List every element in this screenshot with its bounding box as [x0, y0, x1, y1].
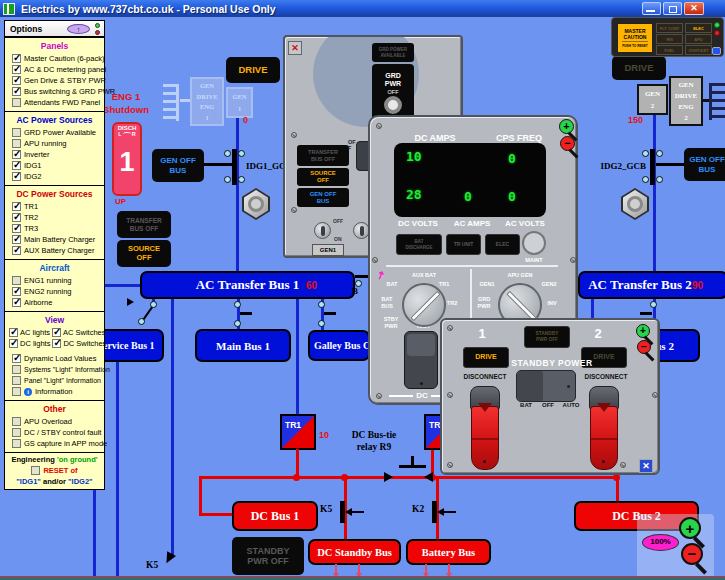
section-ac-power: AC Power Sources GRD Power Available APU… — [5, 111, 104, 185]
btb-wire — [355, 275, 368, 278]
engineering-idg-line: "IDG1" and/or "IDG2" — [6, 477, 103, 486]
cps-freq-value: 0 — [508, 151, 516, 166]
checkbox[interactable] — [12, 213, 21, 222]
option-grd-power[interactable]: GRD Power Available — [5, 127, 104, 138]
option-reset-idg[interactable]: RESET of — [6, 466, 103, 475]
dc-bus-tie-wire — [199, 476, 619, 479]
contact-dot — [224, 150, 231, 157]
dc-sel-aux-bat: AUX BAT — [400, 272, 448, 279]
checkbox[interactable] — [12, 150, 21, 159]
ac-sel-apu-gen: APU GEN — [496, 272, 544, 279]
contact-dot — [318, 301, 325, 308]
wire — [104, 284, 141, 287]
wire-idg2 — [653, 114, 656, 272]
gen-drive-eng1-box: GENDRIVEENG1 — [190, 77, 224, 126]
section-heading: Aircraft — [5, 261, 104, 275]
zoom-out-button[interactable]: − — [681, 543, 703, 565]
off-label: OFF — [333, 218, 343, 224]
idg1-gcb-breaker — [232, 149, 237, 185]
minimize-button[interactable] — [642, 2, 661, 15]
dc-volts-value: 28 — [406, 187, 422, 202]
tr1-load: 10 — [319, 430, 329, 440]
guard-cap — [517, 371, 543, 401]
option-apu-overload[interactable]: APU Overload — [5, 416, 104, 427]
tr1-unit: TR1 — [280, 414, 316, 450]
app-window: GENDRIVEENG1 GEN1 ENG 1Shutdown DRIVE DI… — [0, 0, 725, 580]
contact-dot — [234, 320, 241, 327]
grd-pwr-button[interactable] — [384, 96, 402, 114]
k2-label: K2 — [412, 504, 424, 514]
checkbox[interactable] — [12, 98, 21, 107]
section-panels: Panels Master Caution (6-pack) AC & DC m… — [5, 37, 104, 111]
option-systems-light-info[interactable]: Systems "Light" Information — [5, 364, 104, 375]
standby-pwr-off-annunciator: STANDBY PWR OFF — [524, 326, 570, 348]
grd-power-available-light: GRD POWERAVAILABLE — [372, 43, 414, 62]
wire — [116, 345, 119, 580]
dc-amps-label: DC AMPS — [400, 133, 470, 143]
checkbox[interactable] — [12, 287, 21, 296]
zoom-in-icon[interactable]: + — [636, 324, 650, 338]
idg2-gcb-breaker — [650, 149, 655, 185]
disconnect2-switch[interactable] — [589, 386, 619, 471]
checkbox[interactable] — [12, 224, 21, 233]
dc-bus1: DC Bus 1 — [232, 501, 318, 531]
contact-dot — [656, 176, 663, 183]
dc-meters-selector-knob[interactable] — [402, 283, 446, 327]
dc-volts-label: DC VOLTS — [390, 219, 446, 228]
option-bus-switching[interactable]: Bus switching & GRD PWR — [5, 86, 104, 97]
ac-sel-inv: INV — [542, 300, 562, 307]
ac-transfer-bus1: AC Transfer Bus 1 60 — [140, 271, 355, 299]
bat-discharge-button[interactable]: BATDISCHARGE — [396, 234, 442, 255]
k5-label: K5 — [320, 504, 332, 514]
zoom-percent-badge: 100% — [642, 534, 679, 551]
switch-tick — [640, 312, 652, 315]
checkbox[interactable] — [12, 387, 21, 396]
contact-dot — [238, 176, 245, 183]
ac-sel-grd-pwr: GRD PWR — [472, 296, 496, 309]
disconnect1-switch[interactable] — [470, 386, 500, 471]
gen-off-bus-light-idg2: GEN OFF BUS — [684, 148, 725, 181]
option-gs-capture[interactable]: GS capture in APP mode — [5, 438, 104, 449]
ac-sel-gen1: GEN1 — [474, 281, 500, 288]
junction-dot — [293, 474, 300, 481]
checkbox[interactable] — [12, 439, 21, 448]
gen-drive-eng2-box: GENDRIVEENG2 — [669, 76, 703, 126]
dc-sel-bat-bus: BAT BUS — [375, 296, 399, 309]
dc-wire — [199, 476, 202, 516]
checkbox[interactable] — [9, 328, 18, 337]
ac-volts-value: 0 — [508, 189, 516, 204]
option-attendants-panel[interactable]: Attendants FWD Panel — [5, 97, 104, 108]
relay-arrow-icon — [424, 472, 433, 482]
battery-switch-cap — [407, 334, 435, 356]
gen1-number: 1 — [472, 326, 492, 341]
k5-relay — [350, 511, 364, 513]
push-to-reset-label: PUSH TO RESET — [622, 41, 648, 49]
battery-switch[interactable] — [404, 331, 438, 389]
checkbox[interactable] — [12, 365, 21, 374]
checkbox[interactable] — [12, 276, 21, 285]
option-idg2[interactable]: IDG2 — [5, 171, 104, 182]
ac-bus1-load: 60 — [306, 280, 317, 291]
ac-sel-gen2: GEN2 — [536, 281, 562, 288]
panel-gen-off-bus-light: GEN OFF BUS — [297, 188, 349, 207]
checkbox[interactable] — [12, 161, 21, 170]
breaker-tie — [656, 163, 684, 166]
zoom-out-icon[interactable]: − — [637, 340, 651, 354]
title-bar[interactable]: Electrics by www.737cbt.co.uk - Personal… — [0, 0, 725, 17]
maint-label: MAINT — [518, 257, 550, 263]
panel-source-off-light: SOURCE OFF — [297, 168, 349, 186]
divider — [386, 265, 558, 267]
checkbox[interactable] — [52, 339, 61, 348]
dc-sel-bat: BAT — [382, 281, 402, 288]
ac-bus2-load: 90 — [692, 280, 703, 291]
generator2-nut-icon — [621, 188, 649, 220]
checkbox[interactable] — [12, 417, 21, 426]
section-heading: AC Power Sources — [5, 113, 104, 127]
dc-standby-bus: DC Standby Bus — [308, 539, 401, 565]
gen2-number: 2 — [588, 326, 608, 341]
section-dc-power: DC Power Sources TR1 TR2 TR3 Main Batter… — [5, 185, 104, 259]
battery-switch-pin — [420, 382, 423, 385]
disconnect1-label: DISCONNECT — [459, 373, 511, 380]
section-view: View AC lights AC Switches DC lights DC … — [5, 311, 104, 400]
restore-button[interactable] — [663, 2, 682, 15]
wire-tr1-feed — [296, 298, 299, 416]
arc-icon — [123, 132, 131, 136]
engine1-pylon-icon — [163, 84, 179, 121]
tr-unit-button[interactable]: TR UNIT — [446, 234, 481, 255]
engineering-title: Engineering 'on ground' — [6, 455, 103, 464]
wire-idg1 — [236, 118, 239, 272]
fire-handle-eng1[interactable]: DISCH LR 1 — [112, 122, 142, 196]
off-vertical-label: OFF — [348, 139, 356, 151]
dc-wire — [199, 513, 235, 516]
junction-dot — [613, 474, 620, 481]
checkbox[interactable] — [12, 76, 21, 85]
standby-power-title: STANDBY POWER — [500, 358, 604, 368]
contact-dot — [224, 176, 231, 183]
checkbox[interactable] — [12, 65, 21, 74]
checkbox[interactable] — [12, 128, 21, 137]
annunciator-irs: IRS — [656, 34, 683, 44]
annunciator-flt-cont: FLT CONT — [656, 23, 683, 33]
dc-amps-value: 10 — [406, 149, 422, 164]
contact-dot — [318, 320, 325, 327]
checkbox[interactable] — [12, 54, 21, 63]
blue-icon[interactable] — [712, 47, 721, 55]
cps-freq-label: CPS FREQ — [482, 133, 556, 143]
zoom-overlay: 100% + − — [637, 514, 714, 578]
wire-faint — [180, 99, 190, 102]
magnifier-handle — [695, 562, 707, 574]
drive-annunciator-eng2: DRIVE — [612, 56, 666, 80]
checkbox[interactable] — [9, 339, 18, 348]
annunciator-ovht-det: OVHT/DET — [685, 45, 712, 55]
window-title: Electrics by www.737cbt.co.uk - Personal… — [21, 3, 276, 15]
source-off-light: SOURCE OFF — [117, 240, 171, 267]
main-bus1: Main Bus 1 — [195, 329, 291, 362]
auto-position-label: AUTO — [558, 402, 584, 408]
annunciator-fuel: FUEL — [656, 45, 683, 55]
checkbox[interactable] — [12, 376, 21, 385]
relay-arrow-icon — [345, 508, 352, 516]
ac-transfer-bus2: AC Transfer Bus 2 90 — [578, 271, 725, 299]
standby-power-guard-switch[interactable] — [516, 370, 576, 402]
zoom-in-button[interactable]: + — [679, 517, 701, 539]
gen2-box: GEN2 — [637, 84, 668, 115]
close-icon[interactable]: ✕ — [639, 459, 653, 473]
option-dc-lights-switches[interactable]: DC lights DC Switches — [5, 338, 104, 349]
contact-dot — [150, 301, 157, 308]
options-title: Options — [10, 24, 42, 34]
battery-bus: Battery Bus — [406, 539, 491, 565]
engine2-pylon-icon — [709, 83, 725, 120]
bat-position-label: BAT — [516, 402, 536, 408]
checkbox[interactable] — [52, 328, 61, 337]
standby-pwr-off-light: STANDBYPWR OFF — [232, 537, 304, 575]
contact-dot — [234, 301, 241, 308]
section-aircraft: Aircraft ENG1 running ENG2 running Airbo… — [5, 259, 104, 311]
breaker-tie — [204, 163, 232, 166]
section-other: Other APU Overload DC / STBY control fau… — [5, 400, 104, 452]
checkbox[interactable] — [12, 172, 21, 181]
annunciator-apu: APU — [685, 34, 712, 44]
k2-relay — [442, 511, 456, 513]
grd-pwr-switch-module: GRD PWR OFF — [372, 64, 414, 122]
gen1-box: GEN1 — [226, 87, 253, 118]
info-icon: i — [24, 388, 32, 396]
section-heading: Other — [5, 402, 104, 416]
guard-pin — [567, 385, 570, 388]
ac-amps-value: 0 — [464, 189, 472, 204]
options-panel: Options ↑ Panels Master Caution (6-pack)… — [4, 20, 105, 490]
idg2-gcb-label: IDG2_GCB — [596, 161, 646, 171]
relay-r9-symbol — [399, 465, 426, 468]
section-heading: Panels — [5, 39, 104, 53]
checkbox[interactable] — [12, 354, 21, 363]
contact-dot — [642, 150, 649, 157]
section-heading: View — [5, 313, 104, 327]
idg1-load: 0 — [243, 115, 248, 125]
option-aux-batt-charger[interactable]: AUX Battery Charger — [5, 245, 104, 256]
elec-button[interactable]: ELEC — [485, 234, 520, 255]
idg2-load: 150 — [628, 115, 643, 125]
fire-handle-up-label: UP — [115, 197, 126, 206]
galley-bus: Galley Bus C — [308, 330, 370, 361]
contact-dot — [650, 301, 657, 308]
gen-off-bus-light-idg1: GEN OFF BUS — [152, 149, 204, 182]
sixpack-panel: MASTERCAUTION PUSH TO RESET FLT CONT ELE… — [611, 17, 724, 57]
switch-tick — [240, 312, 252, 315]
maint-button[interactable] — [522, 231, 546, 255]
checkbox[interactable] — [12, 235, 21, 244]
annunciator-elec: ELEC — [685, 23, 712, 33]
checkbox[interactable] — [12, 298, 21, 307]
btb-label-partial: B — [352, 286, 358, 296]
switch-tick — [324, 312, 336, 315]
contact-dot — [238, 150, 245, 157]
dc-sel-stby-pwr: STBY PWR — [378, 316, 404, 329]
disconnect2-label: DISCONNECT — [580, 373, 632, 380]
ac-amps-label: AC AMPS — [448, 219, 496, 228]
off-position-label: OFF — [538, 402, 558, 408]
ac-volts-label: AC VOLTS — [498, 219, 552, 228]
zoom-in-icon[interactable]: + — [559, 119, 574, 134]
transfer-bus-off-light: TRANSFERBUS OFF — [117, 211, 171, 238]
wire-k5-feeder — [171, 298, 174, 556]
relay-arrow-icon — [384, 472, 393, 482]
red-light-icon — [714, 30, 720, 36]
checkbox[interactable] — [12, 428, 21, 437]
green-light-icon — [714, 22, 720, 28]
drive-annunciator-eng1: DRIVE — [226, 57, 280, 83]
checkbox[interactable] — [12, 87, 21, 96]
option-dynamic-load[interactable]: Dynamic Load Values — [5, 353, 104, 364]
contact-dot — [656, 150, 663, 157]
right-arrow-icon — [127, 298, 134, 306]
collapse-button[interactable]: ↑ — [67, 24, 90, 34]
section-heading: DC Power Sources — [5, 187, 104, 201]
generator1-nut-icon — [242, 188, 270, 220]
option-airborne[interactable]: Airborne — [5, 297, 104, 308]
metering-display: 10 0 28 0 0 — [394, 143, 546, 217]
close-button[interactable]: ✕ — [684, 2, 704, 15]
standby-power-panel: 1 2 STANDBY PWR OFF DRIVE DRIVE STANDBY … — [440, 318, 660, 475]
option-dc-stby-fault[interactable]: DC / STBY control fault — [5, 427, 104, 438]
checkbox[interactable] — [12, 139, 21, 148]
master-caution-light[interactable]: MASTERCAUTION PUSH TO RESET — [617, 23, 653, 53]
green-light-icon — [95, 23, 100, 28]
panel-transfer-bus-off-light: TRANSFERBUS OFF — [297, 145, 349, 166]
bus-tie-relay-label: DC Bus-tierelay R9 — [336, 429, 412, 453]
contact-dot — [138, 318, 145, 325]
relay-arrow-icon — [437, 508, 444, 516]
junction-dot — [341, 474, 348, 481]
checkbox[interactable] — [12, 202, 21, 211]
option-panel-light-info[interactable]: Panel "Light" Information — [5, 375, 104, 386]
red-light-icon — [95, 30, 100, 35]
on-label: ON — [334, 236, 342, 242]
gen1-switch-label: GEN1 — [312, 244, 344, 256]
wire — [703, 99, 709, 102]
close-icon[interactable]: ✕ — [288, 41, 302, 55]
k5-feeder-label: K5 — [146, 560, 158, 570]
options-header: Options ↑ — [5, 21, 104, 37]
checkbox[interactable] — [12, 246, 21, 255]
zoom-out-icon[interactable]: − — [560, 136, 575, 151]
option-information[interactable]: iInformation — [5, 386, 104, 397]
app-icon — [3, 3, 15, 15]
checkbox[interactable] — [31, 466, 40, 475]
section-engineering: Engineering 'on ground' RESET of "IDG1" … — [5, 452, 104, 489]
contact-dot — [642, 176, 649, 183]
gen1-switch[interactable] — [314, 222, 331, 239]
